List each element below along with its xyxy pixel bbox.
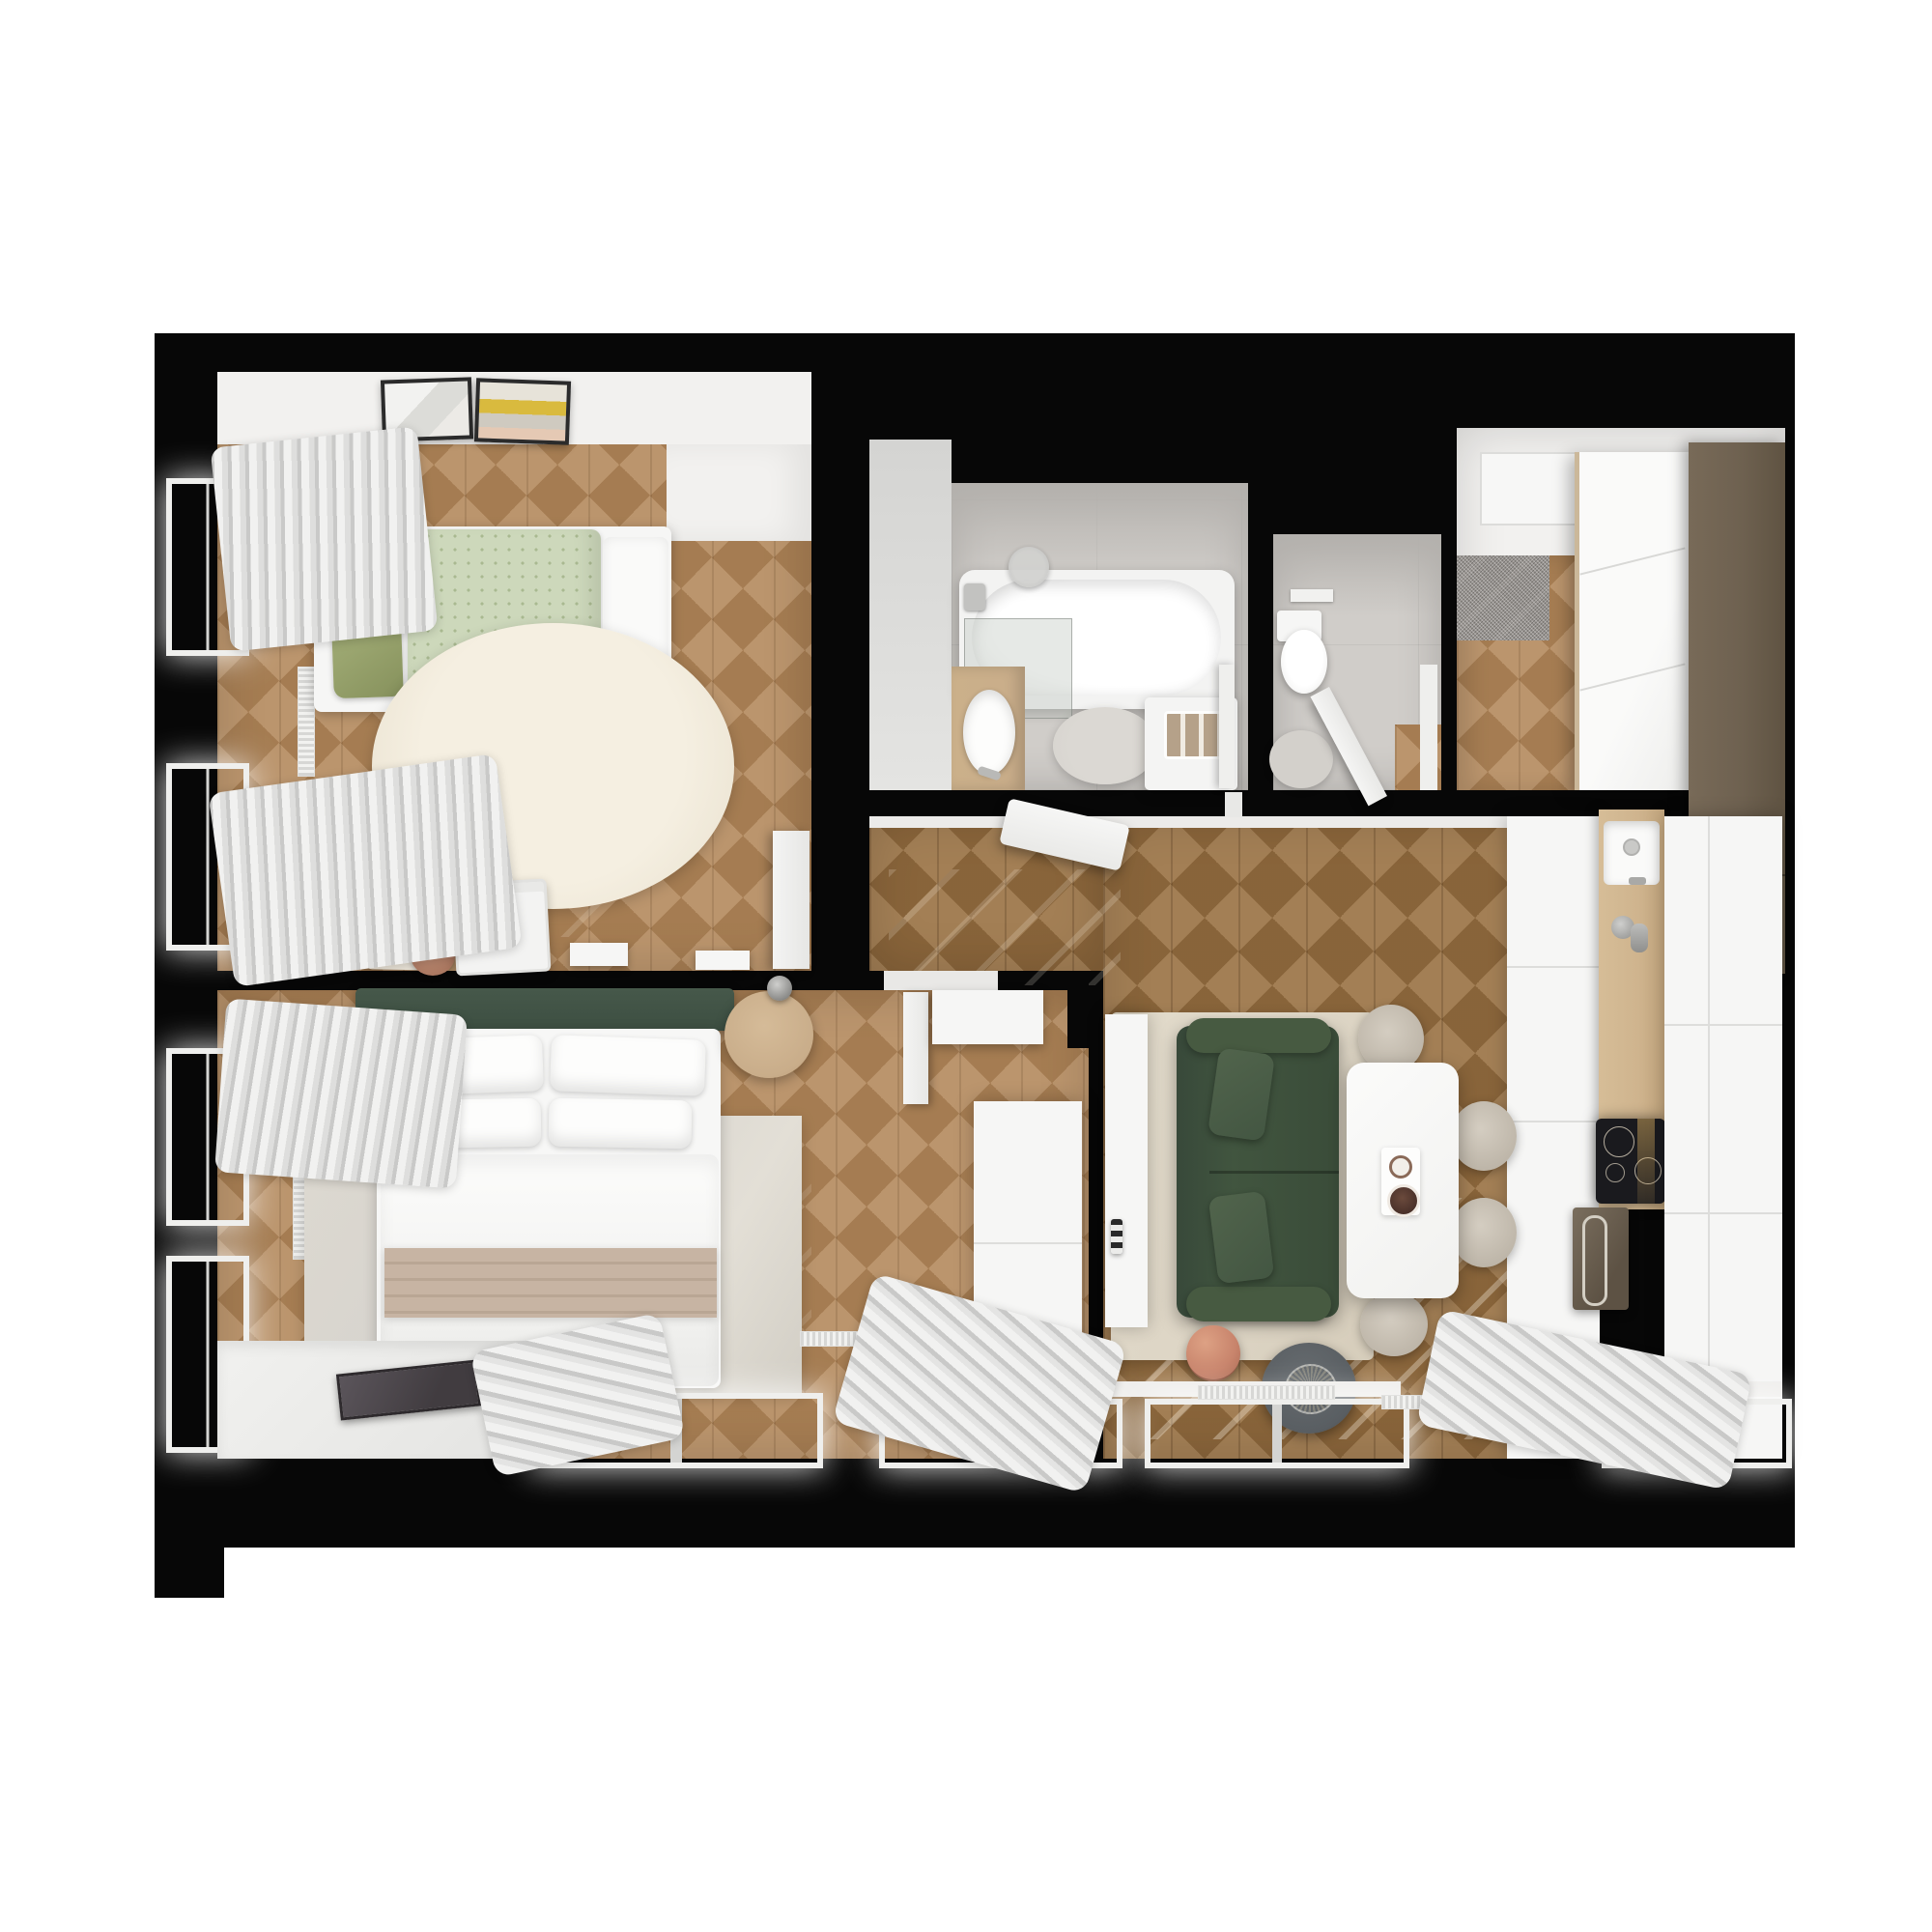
kids-radiator	[298, 667, 315, 777]
floor-plan-canvas	[0, 0, 1932, 1932]
faucet-handle	[1631, 923, 1648, 952]
cooktop-reflection	[1637, 1119, 1655, 1204]
wc-flush-plate	[1291, 589, 1333, 602]
kitchen-seam-2	[1507, 1121, 1600, 1122]
shower-head-icon	[1009, 547, 1049, 587]
sofa-armrest-bottom	[1186, 1287, 1331, 1321]
dining-chair-right-2	[1451, 1198, 1517, 1267]
sofa-armrest-top	[1186, 1018, 1331, 1053]
wardrobe-seam-mid	[974, 1242, 1082, 1244]
sofa-seat-split	[1209, 1171, 1339, 1174]
kids-curtain-lower	[208, 753, 522, 987]
candle-decor	[1111, 1219, 1122, 1254]
bathroom-wall-tiles	[952, 483, 1248, 580]
tall-cab-seam-2	[1664, 1212, 1782, 1214]
wc-door-frame	[1420, 665, 1437, 790]
bedroom-doorway-gap	[884, 971, 998, 990]
oval-sink	[963, 690, 1015, 775]
dining-chair-right-1	[1451, 1101, 1517, 1171]
coffee-bowl	[1387, 1184, 1420, 1217]
kitchen-seam-1	[1507, 966, 1600, 968]
wall-notch-bottom-left	[155, 1546, 224, 1598]
wall-shelf-2	[696, 951, 750, 970]
bedroom-open-door	[903, 992, 928, 1104]
bedroom-white-desk	[932, 990, 1043, 1044]
bathroom-door-frame	[1219, 665, 1235, 788]
basketball	[1186, 1325, 1240, 1381]
art-frame-yellow	[474, 378, 571, 444]
sofa-cushion-1	[1207, 1047, 1275, 1141]
kids-open-door	[773, 831, 810, 969]
sink-faucet	[1629, 877, 1646, 885]
cooktop-ring-large	[1604, 1126, 1634, 1157]
hall-sun-streak	[889, 869, 1121, 985]
living-radiator-1	[1198, 1385, 1335, 1400]
oven-handle	[1582, 1215, 1607, 1306]
bed-pillow-2	[550, 1035, 706, 1096]
entry-doormat	[1457, 555, 1549, 640]
wc-wall-tiles	[1273, 534, 1441, 616]
bedroom-curtain-left	[214, 998, 468, 1188]
lamp-right	[767, 976, 792, 1001]
living-wall-face	[1103, 816, 1509, 828]
sink-drain	[1623, 838, 1640, 856]
hall-door-jamb	[1225, 792, 1242, 817]
wc-round-rug	[1269, 730, 1333, 788]
kids-room-corner-wall-face	[667, 444, 811, 541]
cooktop-ring-small	[1605, 1163, 1625, 1182]
living-window-2	[1145, 1399, 1409, 1468]
wall-shelf	[570, 943, 628, 966]
bed-pillow-4	[549, 1098, 693, 1150]
tub-faucet	[964, 583, 985, 611]
sliding-wardrobe-white	[1575, 452, 1693, 790]
coffee-cup	[1389, 1155, 1412, 1179]
wall-band-kids-bathroom	[869, 440, 952, 790]
dining-chair-bottom	[1360, 1293, 1428, 1356]
sofa-cushion-2	[1208, 1191, 1275, 1284]
bathroom-round-rug	[1053, 707, 1157, 784]
towel-rolls	[1164, 711, 1226, 759]
alcove-wall-return	[1067, 971, 1089, 1048]
kids-curtain-upper	[211, 426, 439, 651]
nightstand-right	[724, 991, 813, 1078]
bed-throw-tan	[384, 1248, 717, 1318]
toilet-bowl	[1281, 630, 1327, 694]
media-side-cabinet	[1105, 1014, 1148, 1327]
tall-cab-seam-v	[1708, 816, 1710, 1459]
tall-cab-seam-1	[1664, 1024, 1782, 1026]
